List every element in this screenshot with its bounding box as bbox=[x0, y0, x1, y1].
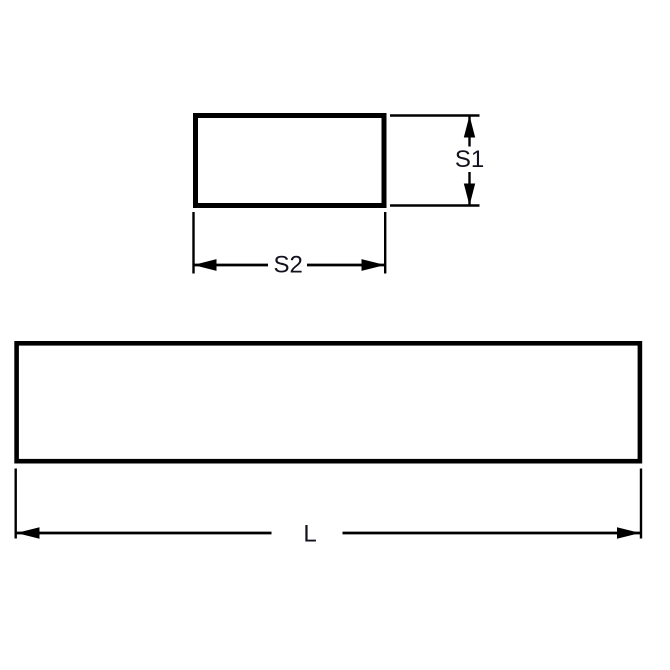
svg-text:S2: S2 bbox=[274, 252, 303, 279]
svg-text:S1: S1 bbox=[455, 146, 484, 173]
svg-text:L: L bbox=[303, 521, 316, 548]
